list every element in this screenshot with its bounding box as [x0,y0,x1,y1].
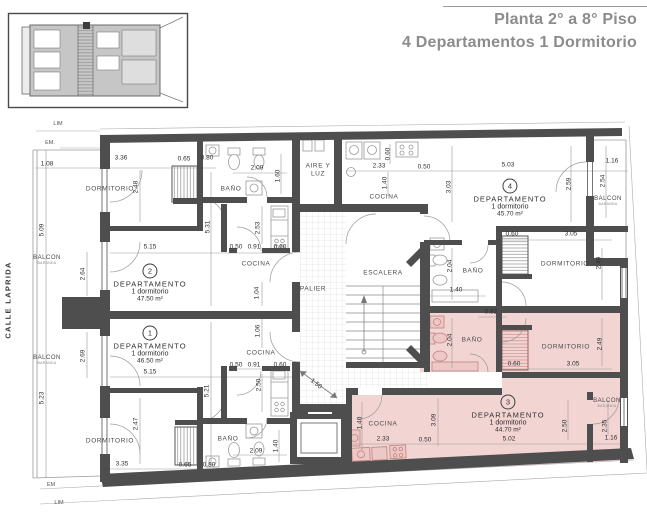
sheet-title-line1: Planta 2° a 8° Piso [402,9,637,32]
sheet-title-line2: 4 Departamentos 1 Dormitorio [402,32,637,55]
floor-plan-sheet: Planta 2° a 8° Piso 4 Departamentos 1 Do… [0,0,647,519]
street-name-label: CALLE LAPRIDA [4,261,13,338]
key-plan-thumbnail [9,14,188,108]
sheet-title: Planta 2° a 8° Piso 4 Departamentos 1 Do… [402,9,637,54]
floor-plan-drawing [0,0,647,519]
stairs-direction-arrow [361,295,367,303]
elevator [290,410,348,464]
